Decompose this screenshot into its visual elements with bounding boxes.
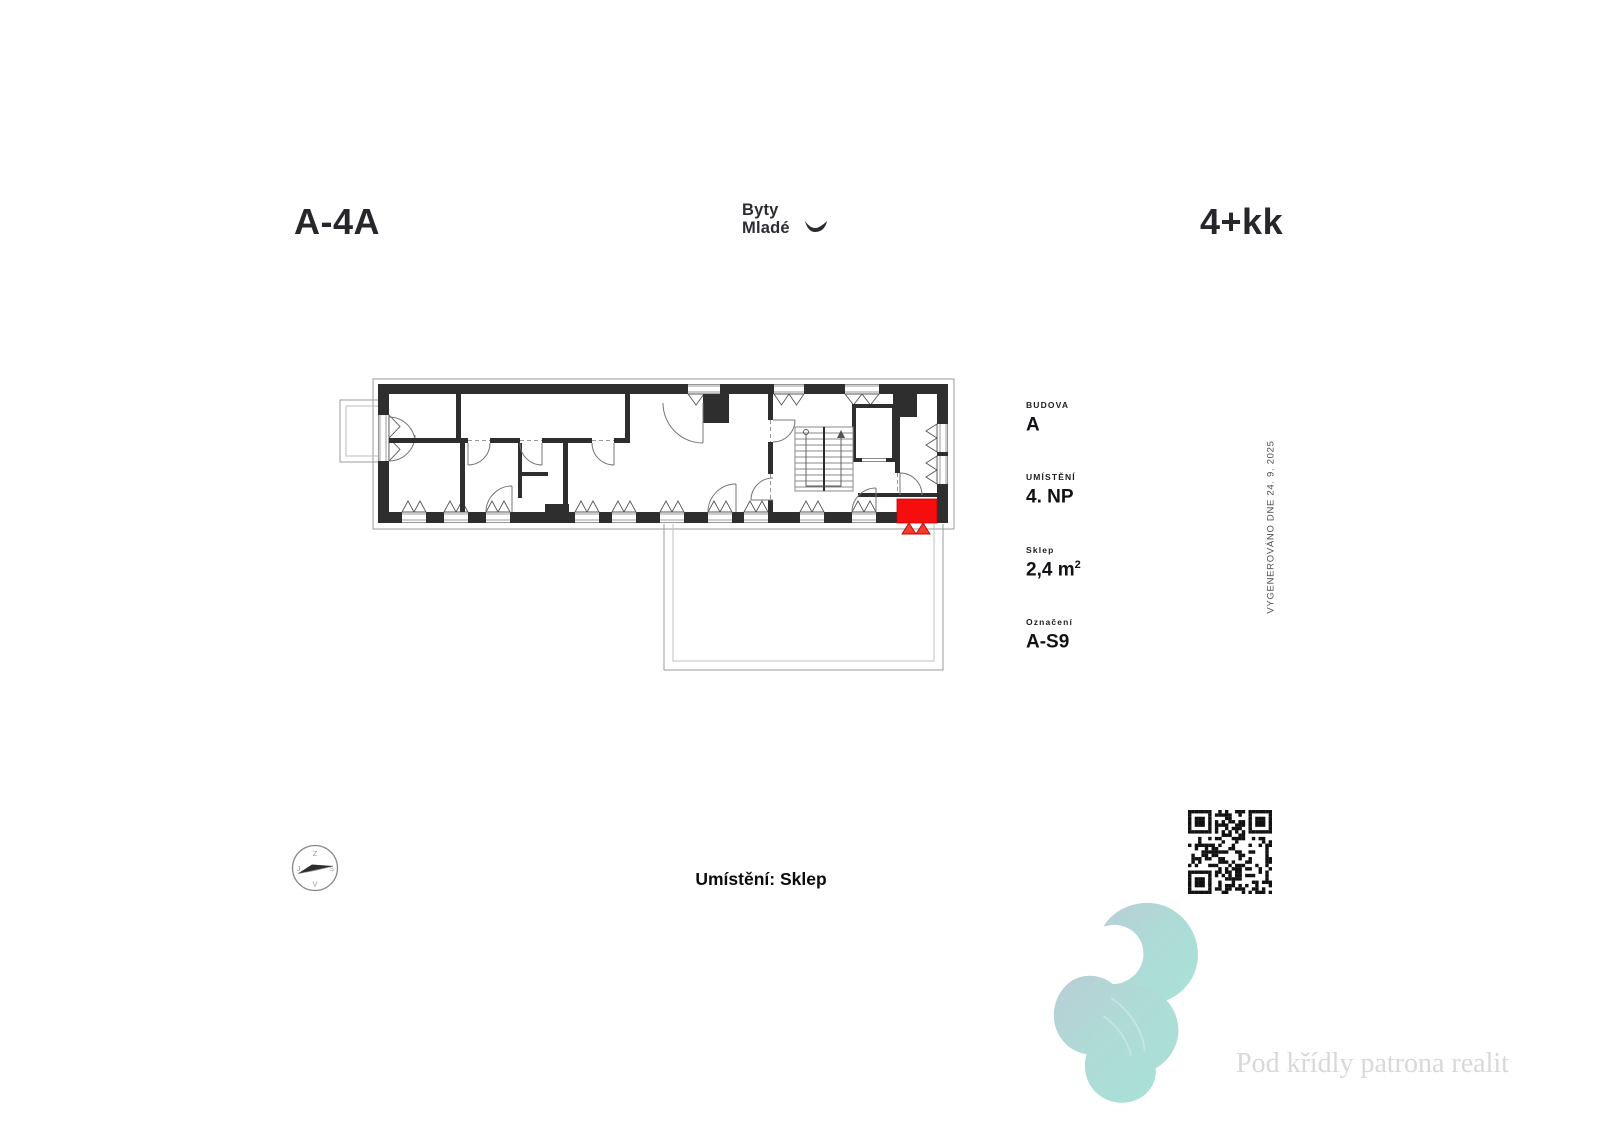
info-label: Sklep [1026, 545, 1226, 555]
info-value: A [1026, 414, 1226, 436]
balcony-left [340, 400, 378, 462]
qr-code [1188, 810, 1272, 894]
patron-tagline: Pod křídly patrona realit [1236, 1048, 1509, 1080]
staircase [795, 427, 853, 491]
terrace-outline [664, 524, 943, 670]
generated-date-note: VYGENEROVÁNO DNE 24. 9. 2025 [1266, 440, 1277, 613]
patron-logo-icon [1052, 898, 1210, 1113]
info-row-sklep: Sklep 2,4 m2 [1026, 545, 1226, 581]
compass-left-label: J [297, 864, 301, 873]
info-panel: BUDOVA A UMÍSTĚNÍ 4. NP Sklep 2,4 m2 Ozn… [1026, 400, 1226, 683]
floor-plan-drawing: Z S V J [0, 0, 1600, 1131]
elevator [854, 406, 894, 464]
info-label: Označení [1026, 617, 1226, 627]
info-label: UMÍSTĚNÍ [1026, 472, 1226, 482]
info-row-budova: BUDOVA A [1026, 400, 1226, 436]
info-value: A-S9 [1026, 631, 1226, 653]
info-value: 2,4 m2 [1026, 559, 1226, 581]
info-row-oznaceni: Označení A-S9 [1026, 617, 1226, 653]
floor-plan-sheet: A-4A Byty Mladé 4+kk [0, 0, 1600, 1131]
compass-icon: Z S V J [293, 846, 338, 891]
info-value: 4. NP [1026, 486, 1226, 508]
compass-top-label: Z [313, 849, 318, 858]
compass-bottom-label: V [312, 880, 317, 889]
info-label: BUDOVA [1026, 400, 1226, 410]
info-row-umisteni: UMÍSTĚNÍ 4. NP [1026, 472, 1226, 508]
compass-right-label: S [329, 864, 334, 873]
location-caption: Umístění: Sklep [695, 869, 826, 890]
